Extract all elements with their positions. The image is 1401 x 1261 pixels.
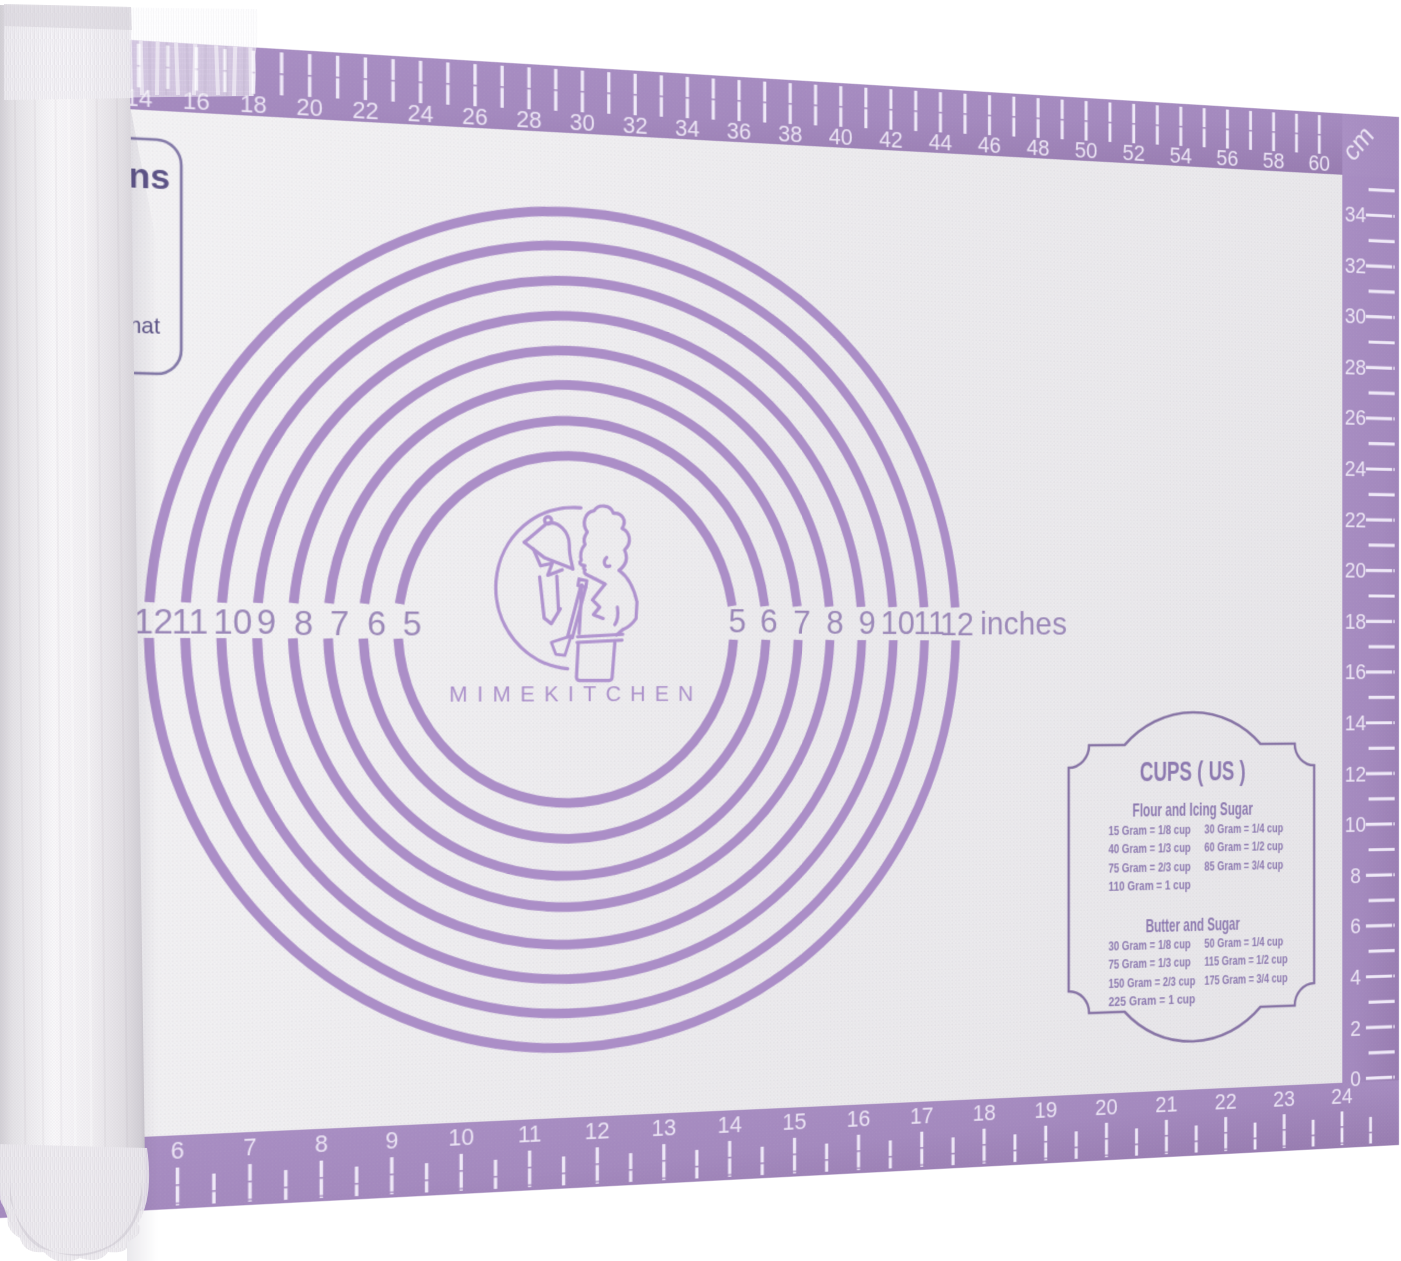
svg-text:22: 22 (352, 97, 378, 125)
svg-text:8: 8 (826, 604, 843, 641)
svg-text:30: 30 (570, 109, 595, 137)
svg-text:52: 52 (1122, 140, 1144, 166)
svg-text:24: 24 (1345, 457, 1366, 482)
svg-text:175 Gram = 3/4 cup: 175 Gram = 3/4 cup (1204, 970, 1287, 988)
svg-text:110 Gram = 1 cup: 110 Gram = 1 cup (1108, 877, 1190, 894)
svg-text:Flour and Icing Sugar: Flour and Icing Sugar (1132, 799, 1252, 821)
svg-text:18: 18 (1345, 610, 1366, 634)
svg-text:36: 36 (727, 118, 751, 145)
svg-text:32: 32 (623, 112, 648, 139)
svg-text:58: 58 (1263, 148, 1285, 174)
svg-text:28: 28 (1345, 355, 1366, 380)
svg-text:15 Gram = 1/8 cup: 15 Gram = 1/8 cup (1108, 822, 1190, 838)
svg-text:40: 40 (829, 124, 853, 151)
svg-text:48: 48 (1027, 135, 1050, 161)
svg-text:26: 26 (1345, 406, 1366, 431)
svg-text:32: 32 (1345, 253, 1366, 278)
svg-text:28: 28 (516, 106, 541, 134)
svg-text:225 Gram = 1 cup: 225 Gram = 1 cup (1108, 992, 1195, 1010)
svg-text:56: 56 (1216, 146, 1238, 172)
svg-text:42: 42 (879, 127, 903, 154)
svg-text:9: 9 (859, 604, 876, 641)
svg-text:23: 23 (1273, 1087, 1295, 1112)
svg-text:30 Gram = 1/8 cup: 30 Gram = 1/8 cup (1108, 937, 1190, 954)
svg-text:20: 20 (296, 94, 323, 122)
svg-text:16: 16 (1345, 661, 1366, 685)
svg-text:22: 22 (1215, 1089, 1237, 1115)
svg-text:11: 11 (518, 1121, 542, 1148)
svg-text:10: 10 (1345, 813, 1366, 837)
svg-text:60: 60 (1308, 151, 1330, 176)
svg-text:54: 54 (1170, 143, 1192, 169)
svg-text:30: 30 (1345, 304, 1366, 329)
svg-text:60 Gram = 1/2 cup: 60 Gram = 1/2 cup (1204, 839, 1283, 855)
svg-text:14: 14 (717, 1112, 741, 1139)
svg-text:20: 20 (1095, 1095, 1118, 1121)
svg-text:26: 26 (462, 103, 488, 131)
svg-text:24: 24 (408, 100, 434, 128)
svg-text:8: 8 (294, 603, 313, 642)
svg-text:44: 44 (929, 129, 952, 156)
svg-text:40 Gram = 1/3 cup: 40 Gram = 1/3 cup (1108, 841, 1190, 858)
svg-text:30 Gram = 1/4 cup: 30 Gram = 1/4 cup (1204, 821, 1283, 837)
svg-text:24: 24 (1331, 1084, 1352, 1109)
svg-text:17: 17 (910, 1103, 933, 1129)
svg-text:10: 10 (448, 1124, 474, 1152)
svg-text:50: 50 (1075, 138, 1098, 164)
svg-text:6: 6 (367, 604, 386, 643)
svg-text:75 Gram = 1/3 cup: 75 Gram = 1/3 cup (1108, 955, 1190, 973)
svg-text:8: 8 (1350, 864, 1361, 888)
svg-text:115 Gram = 1/2 cup: 115 Gram = 1/2 cup (1204, 952, 1287, 969)
svg-text:10: 10 (881, 604, 915, 641)
svg-text:14: 14 (1345, 711, 1366, 735)
svg-text:8: 8 (315, 1130, 328, 1157)
svg-text:6: 6 (760, 603, 778, 641)
svg-text:12: 12 (585, 1118, 610, 1145)
svg-text:22: 22 (1345, 508, 1366, 532)
svg-text:inches: inches (980, 605, 1067, 642)
svg-text:6: 6 (1350, 915, 1361, 939)
svg-text:12: 12 (1345, 762, 1366, 786)
svg-text:Butter and Sugar: Butter and Sugar (1146, 914, 1240, 937)
svg-text:7: 7 (330, 603, 349, 642)
svg-text:19: 19 (1034, 1097, 1057, 1123)
svg-text:9: 9 (385, 1127, 398, 1154)
svg-text:5: 5 (403, 605, 422, 644)
svg-text:46: 46 (978, 132, 1001, 158)
svg-text:20: 20 (1345, 559, 1366, 583)
svg-text:21: 21 (1155, 1092, 1177, 1118)
svg-text:5: 5 (728, 602, 746, 640)
svg-text:16: 16 (847, 1106, 871, 1133)
svg-text:7: 7 (793, 603, 810, 641)
svg-text:85 Gram = 3/4 cup: 85 Gram = 3/4 cup (1204, 857, 1283, 873)
svg-text:34: 34 (1345, 202, 1366, 227)
svg-text:38: 38 (778, 121, 802, 148)
svg-text:15: 15 (782, 1109, 806, 1136)
svg-text:MIMEKITCHEN: MIMEKITCHEN (449, 681, 702, 707)
svg-text:75 Gram = 2/3 cup: 75 Gram = 2/3 cup (1108, 859, 1190, 876)
svg-text:13: 13 (651, 1115, 676, 1142)
svg-text:CUPS ( US ): CUPS ( US ) (1140, 755, 1246, 788)
svg-text:150 Gram = 2/3 cup: 150 Gram = 2/3 cup (1108, 973, 1195, 991)
svg-text:4: 4 (1350, 965, 1361, 989)
svg-text:34: 34 (675, 115, 700, 142)
svg-text:12: 12 (940, 605, 974, 642)
svg-text:18: 18 (973, 1100, 996, 1126)
svg-text:2: 2 (1350, 1016, 1361, 1041)
svg-text:50 Gram = 1/4 cup: 50 Gram = 1/4 cup (1204, 934, 1283, 951)
